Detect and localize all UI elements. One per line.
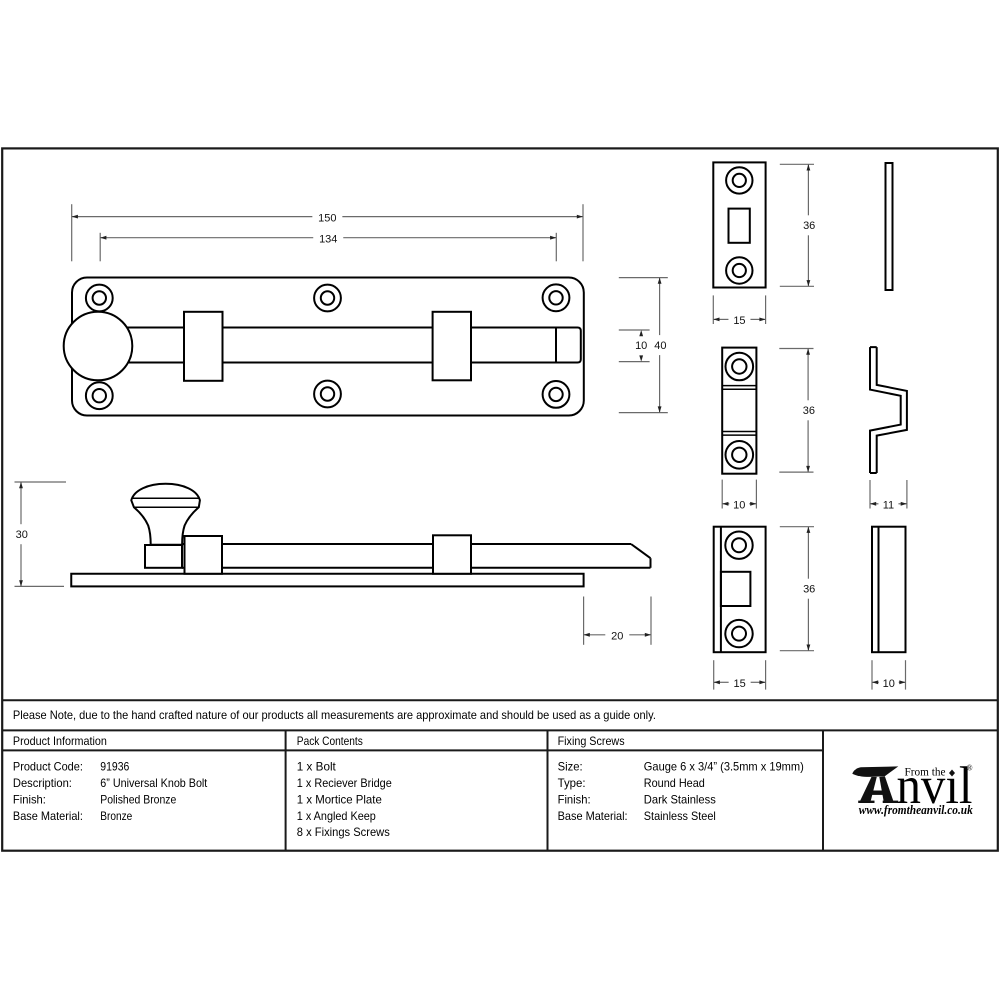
svg-text:Dark Stainless: Dark Stainless xyxy=(644,792,716,806)
svg-text:1 x Mortice Plate: 1 x Mortice Plate xyxy=(297,792,382,806)
svg-text:40: 40 xyxy=(654,340,666,352)
svg-text:36: 36 xyxy=(803,405,815,417)
svg-text:10: 10 xyxy=(635,340,647,352)
svg-text:30: 30 xyxy=(16,529,28,541)
svg-text:Gauge 6 x 3/4” (3.5mm x 19mm): Gauge 6 x 3/4” (3.5mm x 19mm) xyxy=(644,760,804,774)
svg-text:Product Information: Product Information xyxy=(13,734,107,748)
svg-text:1 x Bolt: 1 x Bolt xyxy=(297,760,337,774)
svg-text:Pack Contents: Pack Contents xyxy=(297,734,363,748)
svg-text:15: 15 xyxy=(733,315,745,327)
svg-text:134: 134 xyxy=(319,234,337,246)
svg-text:36: 36 xyxy=(803,220,815,232)
svg-text:6” Universal Knob Bolt: 6” Universal Knob Bolt xyxy=(100,776,208,790)
svg-text:20: 20 xyxy=(611,631,623,643)
svg-text:Type:: Type: xyxy=(558,776,586,790)
svg-text:Stainless Steel: Stainless Steel xyxy=(644,809,716,823)
svg-text:11: 11 xyxy=(883,500,894,512)
svg-text:36: 36 xyxy=(803,584,815,596)
svg-text:Finish:: Finish: xyxy=(558,792,591,806)
svg-text:Fixing Screws: Fixing Screws xyxy=(558,734,625,748)
svg-text:Polished Bronze: Polished Bronze xyxy=(100,792,176,806)
svg-text:15: 15 xyxy=(734,678,746,690)
svg-text:10: 10 xyxy=(733,500,745,512)
svg-text:10: 10 xyxy=(883,678,895,690)
svg-text:From the: From the xyxy=(905,765,946,779)
svg-text:Round Head: Round Head xyxy=(644,776,705,790)
svg-text:®: ® xyxy=(967,764,973,773)
svg-text:www.fromtheanvil.co.uk: www.fromtheanvil.co.uk xyxy=(859,802,973,817)
svg-text:Finish:: Finish: xyxy=(13,792,46,806)
svg-text:Description:: Description: xyxy=(13,776,72,790)
svg-text:Size:: Size: xyxy=(558,760,583,774)
svg-text:Base Material:: Base Material: xyxy=(558,809,628,823)
svg-text:1 x Angled Keep: 1 x Angled Keep xyxy=(297,809,376,823)
svg-text:Product Code:: Product Code: xyxy=(13,760,83,774)
svg-text:8 x Fixings Screws: 8 x Fixings Screws xyxy=(297,825,390,839)
svg-text:91936: 91936 xyxy=(100,760,129,774)
svg-text:Please Note, due to the hand c: Please Note, due to the hand crafted nat… xyxy=(13,708,656,722)
svg-text:1 x Reciever Bridge: 1 x Reciever Bridge xyxy=(297,776,392,790)
svg-text:150: 150 xyxy=(318,212,336,224)
svg-text:Base Material:: Base Material: xyxy=(13,809,83,823)
svg-text:Bronze: Bronze xyxy=(100,809,132,823)
